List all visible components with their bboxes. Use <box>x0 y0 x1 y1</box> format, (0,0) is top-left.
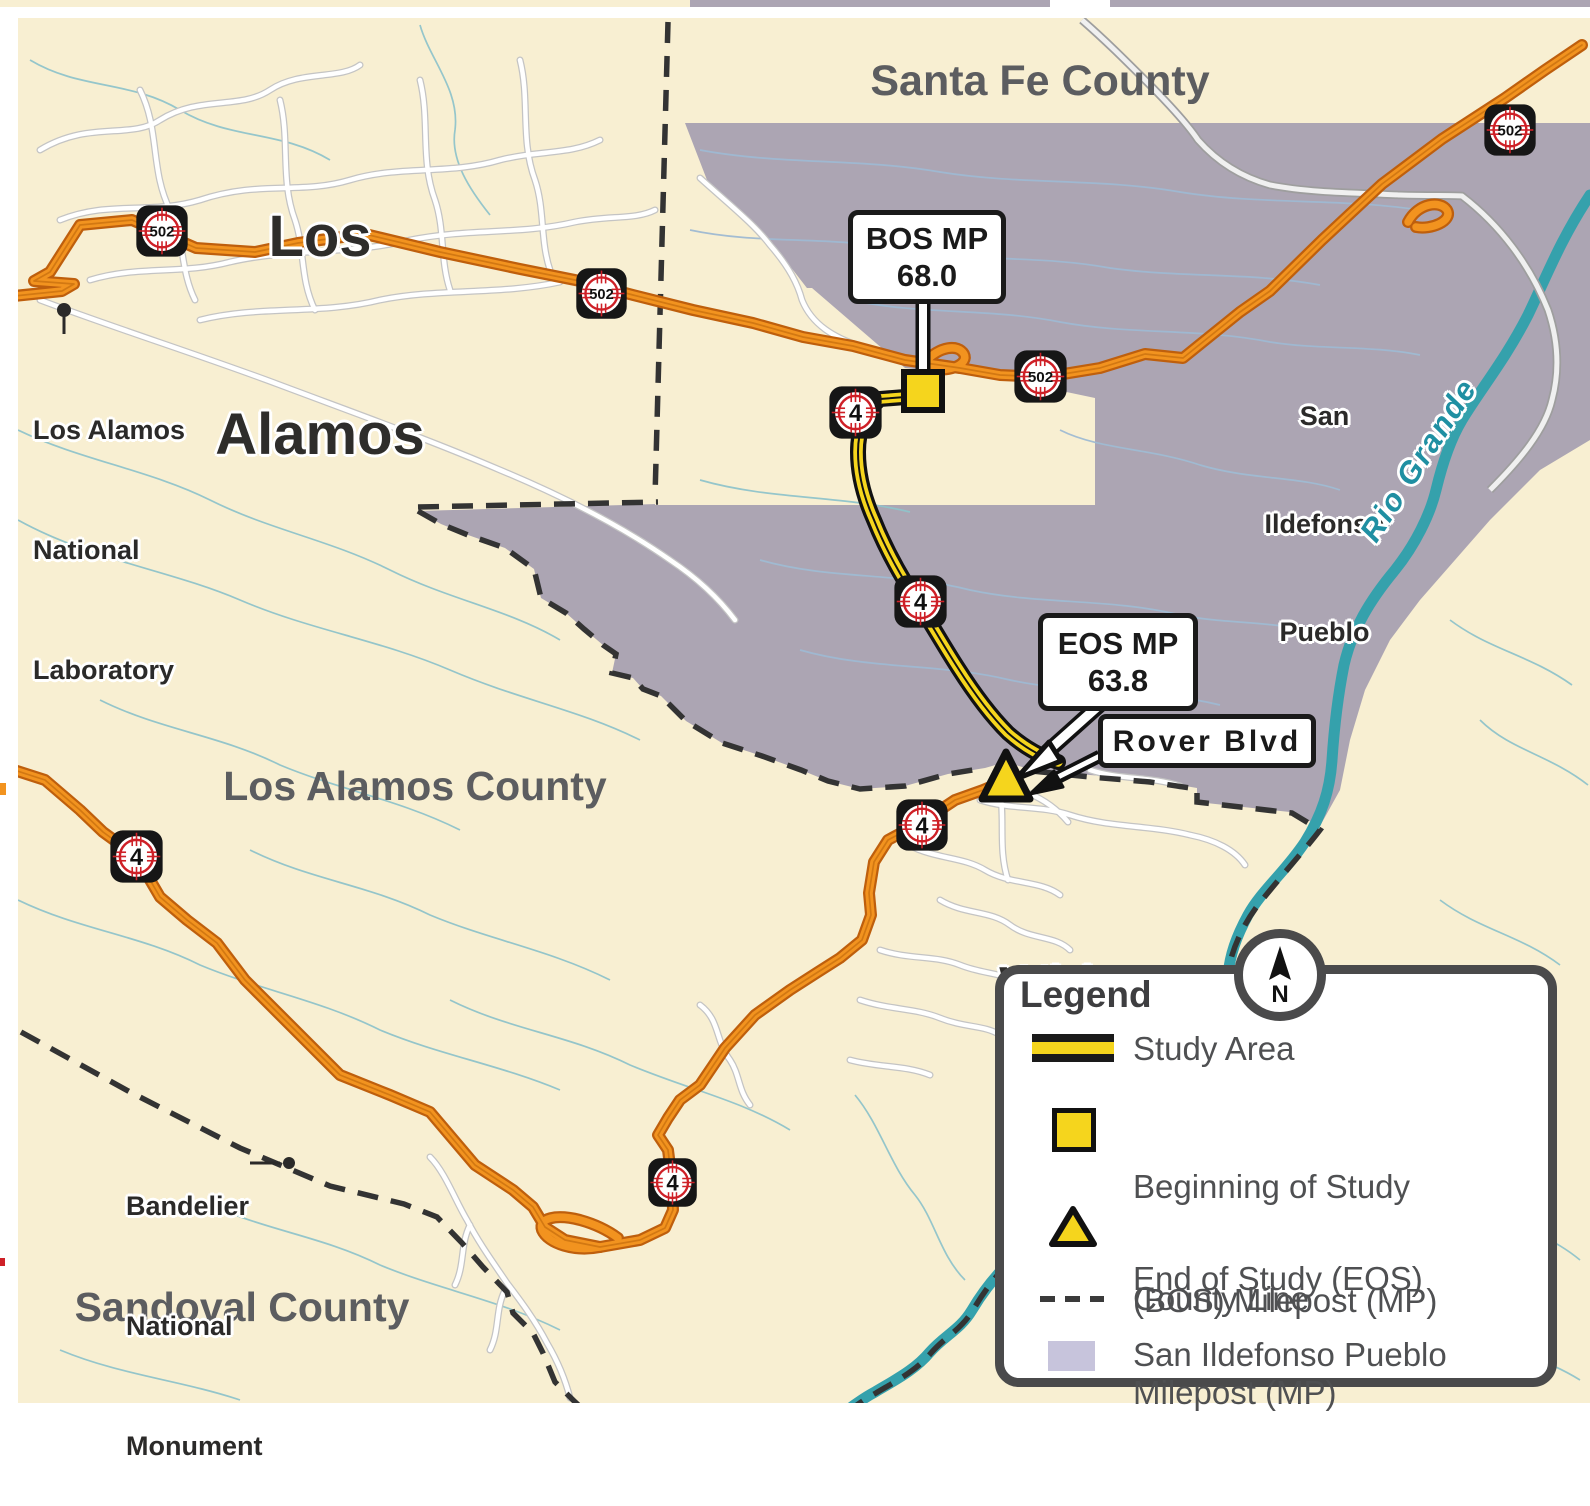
label-los-alamos: Los Alamos <box>160 72 480 534</box>
legend-pueblo-swatch <box>1048 1341 1095 1371</box>
legend-bos-swatch <box>1052 1108 1096 1152</box>
route-shield-4: 4 <box>108 828 165 885</box>
eos-callout-title: EOS MP <box>1058 625 1179 662</box>
north-arrow-needle <box>1269 946 1291 980</box>
route-shield-4: 4 <box>894 797 950 853</box>
route-shield-4: 4 <box>827 384 884 441</box>
label-santa-fe-county: Santa Fe County <box>830 56 1250 108</box>
map-page: { "map": { "place_labels": { "los_alamos… <box>0 0 1590 1425</box>
svg-text:4: 4 <box>666 1170 679 1195</box>
north-arrow-letter: N <box>1271 981 1288 1008</box>
label-los-alamos-county: Los Alamos County <box>215 762 615 811</box>
svg-text:502: 502 <box>150 223 175 240</box>
left-edge-sliver-red <box>0 1258 5 1266</box>
north-arrow: N <box>1234 929 1326 1021</box>
legend-pueblo-label: San Ildefonso Pueblo <box>1133 1336 1447 1374</box>
legend-study-area-swatch <box>1032 1034 1114 1062</box>
bos-milepost-marker <box>904 372 942 410</box>
top-edge-sliver-pueblo <box>690 0 1590 7</box>
route-shield-502: 502 <box>1482 102 1538 158</box>
route-shield-502: 502 <box>574 266 629 321</box>
route-shield-502: 502 <box>1012 348 1069 405</box>
svg-text:502: 502 <box>589 286 613 302</box>
eos-callout: EOS MP 63.8 <box>1038 613 1198 711</box>
svg-text:4: 4 <box>129 844 143 871</box>
svg-text:4: 4 <box>913 589 927 616</box>
rover-blvd-label: Rover Blvd <box>1113 723 1301 760</box>
top-edge-sliver-gap <box>1050 0 1110 7</box>
legend-study-area-label: Study Area <box>1133 1030 1294 1068</box>
left-edge-sliver-orange <box>0 783 6 795</box>
legend-eos-swatch <box>1048 1204 1098 1254</box>
svg-text:502: 502 <box>1027 368 1052 385</box>
eos-callout-value: 63.8 <box>1088 662 1148 699</box>
route-shield-4: 4 <box>646 1156 699 1209</box>
bos-callout: BOS MP 68.0 <box>848 210 1006 304</box>
svg-text:4: 4 <box>848 400 862 427</box>
route-shield-4: 4 <box>892 573 949 630</box>
svg-text:502: 502 <box>1498 122 1523 139</box>
bos-callout-value: 68.0 <box>897 257 957 294</box>
label-bandelier: Bandelier National Monument <box>126 1106 262 1506</box>
label-lanl: Los Alamos National Laboratory <box>33 330 185 730</box>
rover-blvd-callout: Rover Blvd <box>1098 714 1316 768</box>
legend-county-line-swatch <box>1040 1296 1104 1302</box>
legend-title: Legend <box>1020 974 1152 1016</box>
svg-text:4: 4 <box>916 812 929 838</box>
legend-county-line-label: County Line <box>1133 1280 1309 1318</box>
route-shield-502: 502 <box>134 203 190 259</box>
bos-callout-title: BOS MP <box>866 220 988 257</box>
